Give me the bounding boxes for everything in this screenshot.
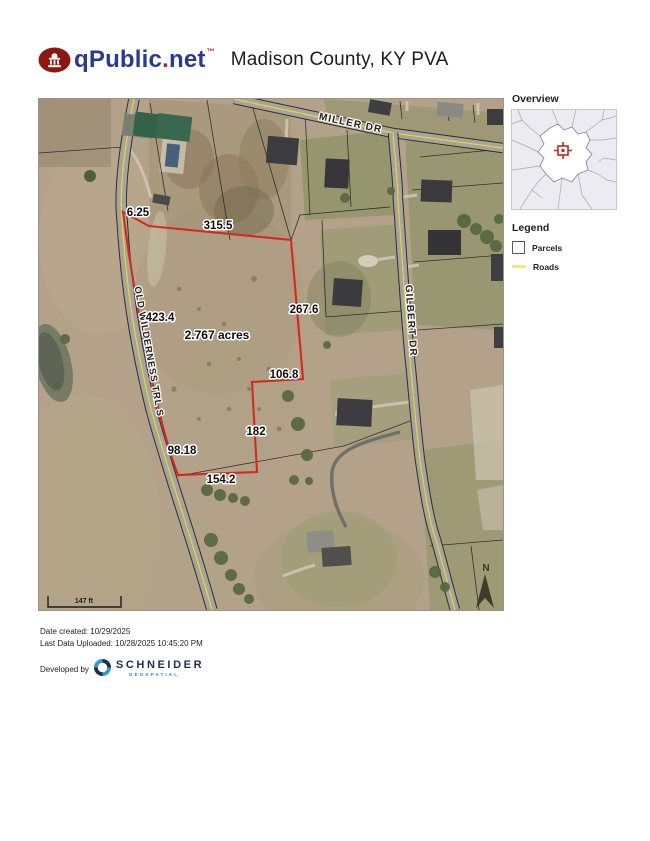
brand-net: net (169, 46, 206, 74)
dimension-label: 98.18 (168, 445, 197, 457)
vendor-subtitle: GEOSPATIAL (129, 672, 204, 677)
dimension-label: 106.8 (270, 369, 299, 381)
legend: Legend Parcels Roads (512, 222, 622, 272)
legend-item-label: Roads (533, 262, 559, 272)
legend-item-label: Parcels (532, 243, 562, 253)
pool (165, 143, 180, 167)
dimension-label: 182 (246, 426, 265, 438)
schneider-globe-icon (93, 658, 112, 677)
page-title: Madison County, KY PVA (231, 49, 449, 71)
schneider-logo: SCHNEIDER GEOSPATIAL (93, 658, 204, 677)
acreage-label: 2.767 acres (185, 328, 250, 342)
developed-by-label: Developed by (40, 665, 89, 674)
aerial-map: MILLER DR OLD WILDERNESS TRL S GILBERT D… (39, 99, 503, 610)
north-arrow-label: N (482, 563, 489, 574)
sidebar: Overview Legend (512, 93, 622, 272)
legend-item-parcels: Parcels (512, 241, 622, 254)
header: qPublic.net ™ Madison County, KY PVA (38, 44, 449, 76)
brand-dot: . (162, 46, 169, 74)
dimension-label: 423.4 (146, 312, 175, 324)
aerial-map-canvas: MILLER DR OLD WILDERNESS TRL S GILBERT D… (39, 99, 503, 610)
last-data-uploaded: Last Data Uploaded: 10/28/2025 10:45:20 … (40, 638, 204, 650)
dimension-label: 6.25 (127, 207, 150, 219)
brand-q: qPublic (74, 46, 162, 74)
dimension-label: 267.6 (290, 304, 319, 316)
overview-map (512, 110, 616, 209)
qpublic-logo-icon (38, 47, 71, 73)
footer: Date created: 10/29/2025 Last Data Uploa… (40, 626, 204, 677)
road-swatch-icon (512, 265, 526, 268)
parcel-swatch-icon (512, 241, 525, 254)
brand-wordmark: qPublic.net ™ (74, 46, 215, 74)
overview-title: Overview (512, 93, 622, 105)
trademark-symbol: ™ (207, 47, 215, 56)
dimension-label: 154.2 (207, 474, 236, 486)
dimension-label: 315.5 (204, 220, 233, 232)
scale-bar-label: 147 ft (75, 598, 94, 605)
legend-title: Legend (512, 222, 622, 234)
legend-item-roads: Roads (512, 261, 622, 272)
vendor-name: SCHNEIDER (116, 659, 204, 671)
date-created: Date created: 10/29/2025 (40, 626, 204, 638)
